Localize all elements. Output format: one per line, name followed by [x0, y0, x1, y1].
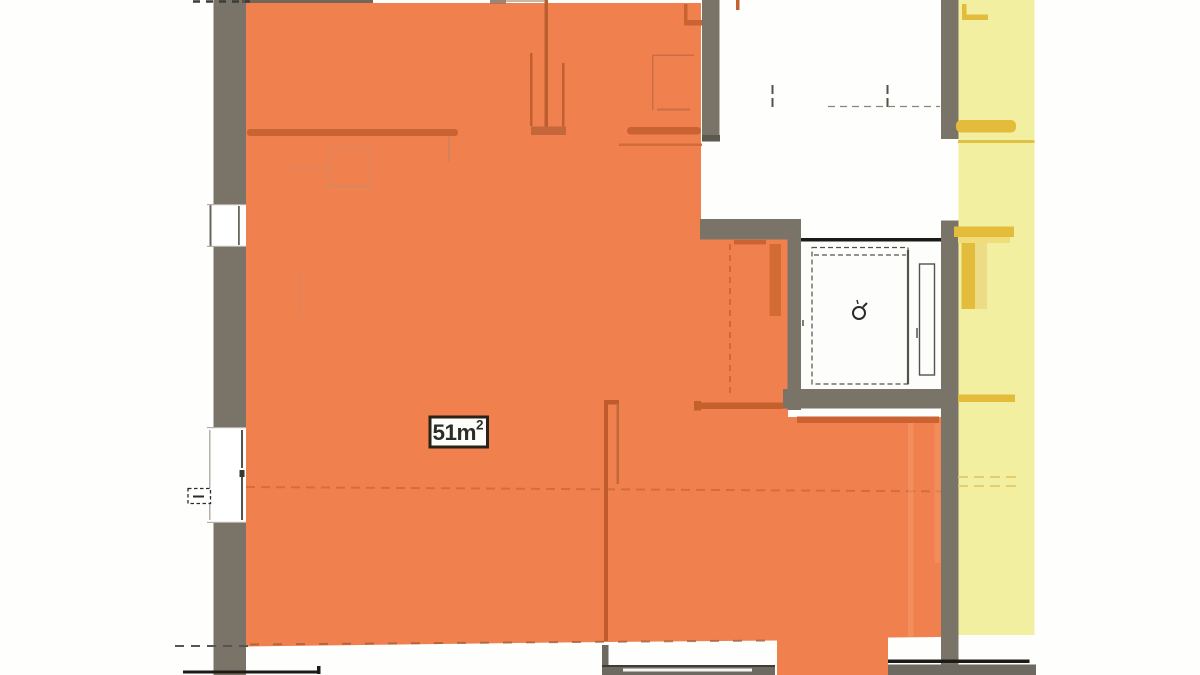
svg-text:2: 2: [476, 418, 484, 433]
svg-text:51m: 51m: [433, 420, 477, 445]
